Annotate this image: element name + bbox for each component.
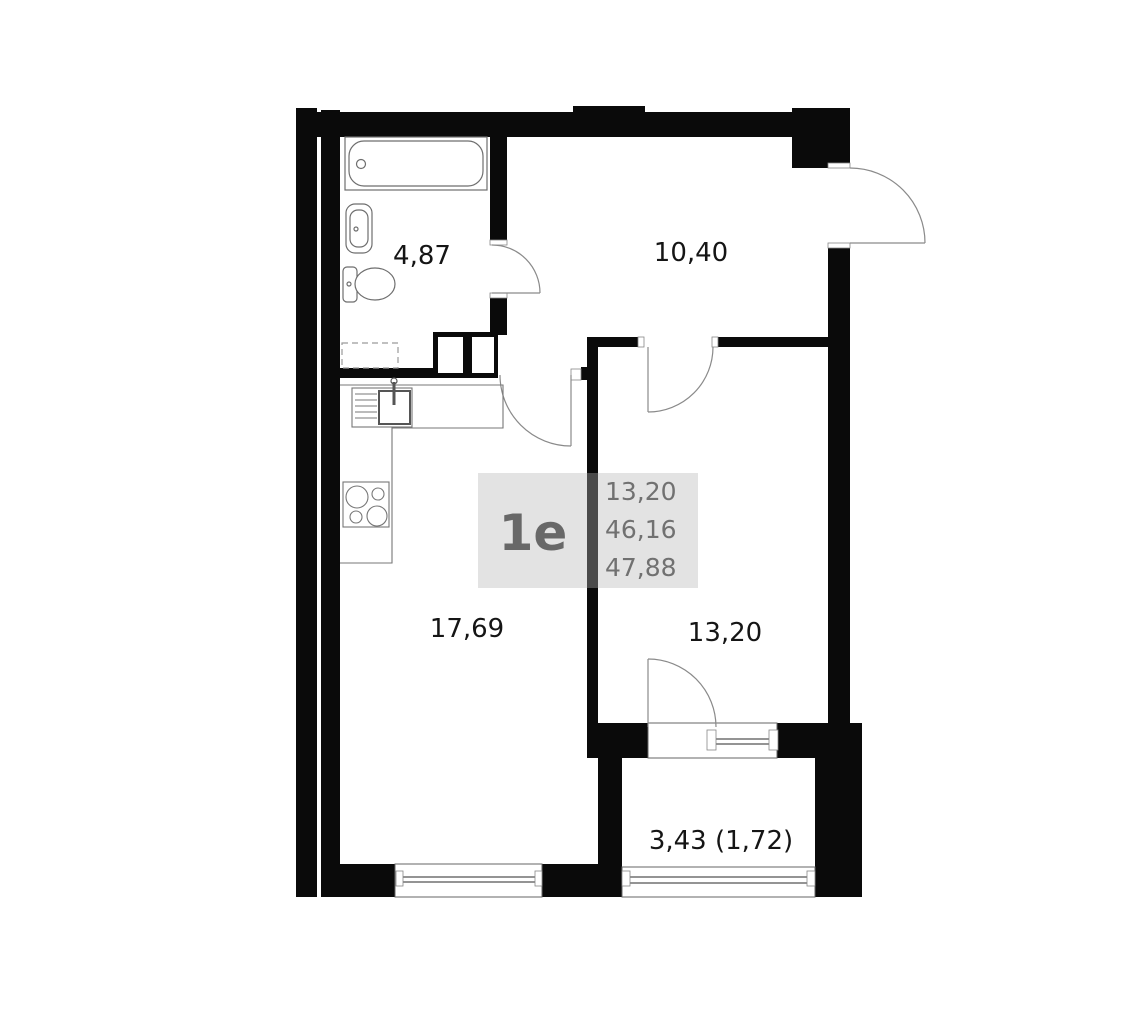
wall-left-inner [321,110,340,897]
bathtub-icon [345,137,487,190]
wall-left-outer-strip [296,108,317,897]
hallway-area-label: 10,40 [654,238,728,268]
unit-info-wall-showthrough [587,473,598,588]
stove-icon [343,482,389,527]
wall-bottom-pier-right [542,864,622,897]
wall-top-bump [573,106,645,114]
living-area-value: 13,20 [605,477,677,506]
washer-placeholder [342,343,398,368]
wall-bottom-block-right [777,723,862,758]
shaft-box-left [438,337,463,373]
washbasin-icon [346,204,372,253]
wall-bath-bottom [321,368,433,378]
wall-top [317,112,848,137]
living-kitchen-area-label: 17,69 [430,614,504,644]
wall-bath-right-lower [490,293,507,335]
floor-plan-page: 4,87 10,40 17,69 13,20 3,43 (1,72) 1e 13… [0,0,1145,1022]
wall-bath-right-upper [490,135,507,245]
bathroom-area-label: 4,87 [393,241,451,271]
door-sills [490,163,850,380]
wall-bedroom-top-right [713,337,828,347]
toilet-icon [343,267,395,302]
floor-plan-drawing: 4,87 10,40 17,69 13,20 3,43 (1,72) 1e 13… [0,0,1145,1022]
wall-bottom-pier-left [321,864,395,897]
bedroom-door-arc [648,347,713,412]
wall-bedroom-top-left [598,337,643,347]
bathroom-door-arc [492,245,540,293]
wall-bedroom-bottom-left [587,723,648,758]
balcony-window-frame [622,867,815,897]
area-no-balcony-value: 46,16 [605,515,677,544]
wall-right [828,243,850,723]
living-window-frame [395,864,542,897]
unit-type-label: 1e [499,504,568,562]
bedroom-area-label: 13,20 [688,618,762,648]
total-area-value: 47,88 [605,553,677,582]
shaft-box-right [472,337,494,373]
wall-balcony-right [815,758,862,897]
wall-corner-block-topright [792,108,850,168]
unit-info-overlay: 1e 13,20 46,16 47,88 [478,473,698,588]
balcony-door-arc [648,659,716,727]
balcony-area-label: 3,43 (1,72) [649,826,793,856]
living-door-arc [500,375,571,446]
entrance-door-arc [850,168,925,243]
